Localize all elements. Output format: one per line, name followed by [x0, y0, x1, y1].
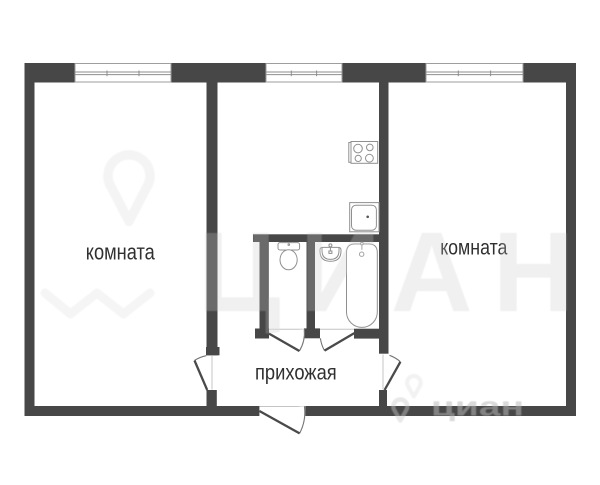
svg-text:И: И	[300, 209, 381, 335]
svg-text:прихожая: прихожая	[255, 362, 337, 385]
svg-text:циан: циан	[431, 392, 524, 422]
svg-text:Ц: Ц	[198, 209, 281, 335]
svg-text:А: А	[391, 209, 473, 335]
svg-text:комната: комната	[86, 239, 156, 264]
svg-text:Н: Н	[493, 209, 575, 335]
